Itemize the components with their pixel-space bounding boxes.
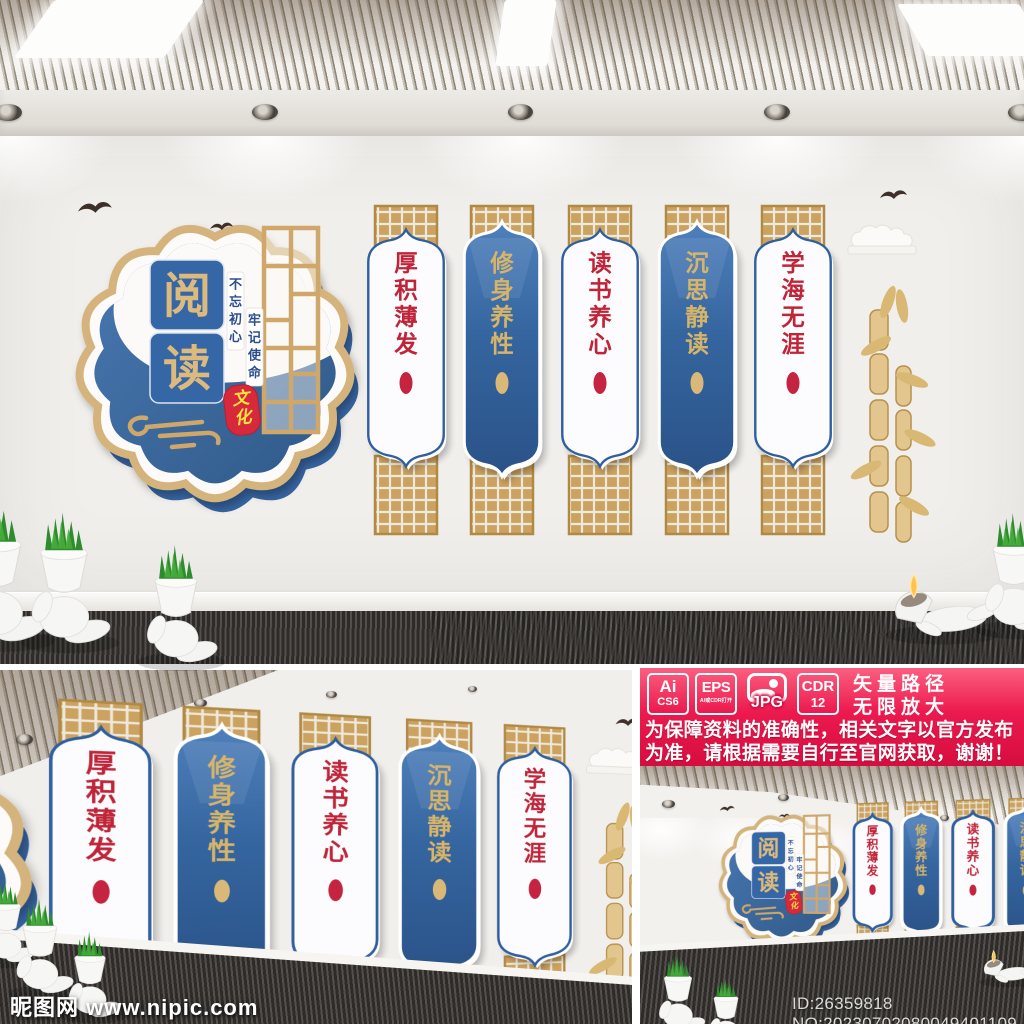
downlight-icon: [1008, 104, 1024, 121]
panel-厚积薄发: 厚积薄发: [368, 206, 446, 534]
disclaimer-line: 为准，请根据需要自行至官网获取，谢谢！: [645, 742, 1019, 765]
svg-text:发: 发: [84, 836, 117, 865]
svg-text:读: 读: [1020, 862, 1024, 877]
svg-text:书: 书: [588, 277, 612, 303]
svg-text:养: 养: [587, 303, 612, 330]
svg-text:忘: 忘: [229, 294, 242, 309]
svg-text:身: 身: [915, 836, 928, 851]
badge-label: CDR: [799, 679, 837, 694]
ceiling-light: [14, 0, 205, 58]
svg-text:修: 修: [207, 755, 237, 783]
svg-text:心: 心: [588, 331, 612, 357]
svg-text:养: 养: [914, 850, 928, 865]
svg-text:薄: 薄: [867, 850, 879, 864]
svg-text:读: 读: [163, 343, 211, 396]
svg-text:性: 性: [208, 838, 236, 865]
culture-seal: 文化: [222, 383, 262, 437]
svg-text:身: 身: [208, 781, 236, 809]
bamboo-decoration: [848, 284, 937, 542]
badge-sublabel: AI或CDR打开: [698, 699, 734, 704]
culture-wall: 厚积薄发修身养性读书养心沉思静读学海无涯阅读不忘初心牢记使命文化: [60, 170, 960, 600]
svg-text:养: 养: [965, 849, 980, 864]
svg-text:学: 学: [524, 766, 547, 791]
svg-text:读: 读: [588, 250, 612, 276]
svg-text:无: 无: [781, 304, 805, 330]
svg-text:初: 初: [229, 312, 242, 327]
svg-text:涯: 涯: [781, 331, 805, 357]
svg-text:书: 书: [967, 835, 980, 850]
badge-sublabel: CS6: [649, 697, 687, 708]
svg-text:书: 书: [323, 786, 349, 812]
panel-读书养心: 读书养心: [562, 206, 640, 534]
svg-text:读: 读: [758, 870, 780, 895]
svg-text:思: 思: [1020, 836, 1024, 850]
svg-text:积: 积: [394, 277, 418, 303]
downlight-icon: [764, 104, 790, 120]
svg-text:命: 命: [247, 365, 262, 380]
svg-text:发: 发: [393, 330, 418, 357]
cloud-shelf: [848, 225, 916, 254]
svg-text:修: 修: [489, 250, 514, 276]
svg-text:身: 身: [490, 276, 514, 303]
svg-text:读: 读: [323, 759, 350, 786]
svg-text:海: 海: [524, 791, 547, 816]
tagline-line: 无限放大: [853, 696, 949, 719]
downlight-icon: [0, 104, 22, 121]
svg-text:积: 积: [86, 779, 117, 808]
svg-text:心: 心: [229, 329, 242, 344]
bird-icon: [616, 718, 632, 727]
gold-shelf: [264, 228, 318, 432]
svg-text:读: 读: [967, 822, 980, 837]
disclaimer-text: 为保障资料的准确性，相关文字以官方发布 为准，请根据需要自行至官网获取，谢谢！: [640, 718, 1024, 765]
svg-text:思: 思: [685, 277, 709, 303]
ceiling-soffit: [0, 90, 1024, 136]
main-render: 厚积薄发修身养性读书养心沉思静读学海无涯阅读不忘初心牢记使命文化: [0, 0, 1024, 664]
svg-text:静: 静: [1020, 848, 1024, 863]
svg-text:读: 读: [685, 331, 709, 357]
badge-sublabel: 12: [799, 696, 837, 709]
badge-label: Ai: [649, 678, 687, 695]
format-badge-ai: Ai CS6: [647, 673, 689, 715]
format-badge-cdr: CDR 12: [797, 673, 839, 715]
svg-text:静: 静: [685, 304, 709, 330]
downlight-icon: [662, 800, 675, 808]
panel-沉思静读: 沉思静读: [659, 206, 737, 534]
downlight-icon: [252, 104, 278, 120]
ceiling-light: [495, 0, 556, 66]
culture-seal: 文化: [784, 889, 803, 914]
svg-text:性: 性: [490, 331, 514, 357]
info-banner: Ai CS6 EPS AI或CDR打开 JPG CDR 12 矢量路径 无限放大: [640, 668, 1024, 766]
svg-text:积: 积: [867, 837, 879, 851]
svg-text:沉: 沉: [685, 250, 709, 276]
angled-render-right: 厚积薄发修身养性读书养心沉思静读学海无涯阅读不忘初心牢记使命文化: [640, 766, 1024, 1024]
format-badge-eps: EPS AI或CDR打开: [695, 673, 737, 715]
bird-icon: [720, 806, 735, 811]
cloud-shelf: [587, 747, 632, 775]
panel-学海无涯: 学海无涯: [755, 206, 833, 534]
svg-text:无: 无: [524, 817, 547, 841]
svg-text:阅: 阅: [758, 836, 780, 862]
sun-dot-icon: [769, 679, 778, 688]
format-badge-jpg: JPG: [743, 673, 791, 712]
svg-text:心: 心: [967, 864, 980, 878]
culture-wall-graphic: 厚积薄发修身养性读书养心沉思静读学海无涯阅读不忘初心牢记使命文化: [60, 170, 960, 600]
svg-text:静: 静: [427, 815, 452, 840]
svg-text:读: 读: [427, 841, 452, 866]
watermark: 昵图网 www.nipic.com: [10, 990, 258, 1022]
svg-text:修: 修: [914, 823, 928, 838]
svg-text:性: 性: [915, 863, 928, 878]
tagline-line: 矢量路径: [853, 673, 949, 696]
svg-text:不: 不: [788, 839, 794, 847]
svg-text:厚: 厚: [86, 750, 117, 779]
svg-text:厚: 厚: [394, 250, 418, 276]
carpet-floor: [0, 611, 1024, 664]
bird-icon: [880, 190, 907, 199]
downlight-icon: [508, 104, 533, 120]
badge-label: JPG: [743, 694, 791, 712]
svg-text:海: 海: [781, 276, 805, 303]
svg-text:厚: 厚: [867, 825, 879, 838]
svg-text:阅: 阅: [163, 270, 211, 323]
svg-text:薄: 薄: [394, 304, 418, 330]
baseboard: [0, 592, 1024, 612]
format-badges: Ai CS6 EPS AI或CDR打开 JPG CDR 12 矢量路径 无限放大: [640, 668, 1024, 718]
badge-label: EPS: [697, 680, 735, 695]
disclaimer-line: 为保障资料的准确性，相关文字以官方发布: [645, 719, 1019, 742]
svg-text:发: 发: [866, 864, 879, 878]
gold-shelf: [804, 815, 830, 913]
svg-text:思: 思: [427, 789, 451, 814]
svg-text:学: 学: [781, 249, 805, 276]
svg-text:养: 养: [321, 812, 349, 839]
svg-text:记: 记: [248, 330, 261, 345]
svg-text:不: 不: [229, 277, 242, 292]
vector-tagline: 矢量路径 无限放大: [853, 673, 949, 719]
angled-render-left: 厚积薄发修身养性读书养心沉思静读学海无涯阅读不忘初心牢记使命文化: [0, 670, 632, 1024]
svg-text:涯: 涯: [524, 842, 547, 866]
image-id: ID:26359818 NO:20230702080049401109: [792, 994, 1024, 1024]
svg-text:沉: 沉: [427, 763, 452, 789]
ceiling-light: [897, 4, 1024, 56]
panel-修身养性: 修身养性: [464, 206, 542, 534]
svg-text:沉: 沉: [1020, 820, 1024, 835]
svg-text:薄: 薄: [86, 808, 117, 836]
svg-text:养: 养: [489, 303, 514, 330]
svg-text:养: 养: [207, 809, 237, 837]
svg-text:使: 使: [247, 348, 262, 363]
design-preview: 厚积薄发修身养性读书养心沉思静读学海无涯阅读不忘初心牢记使命文化 厚积薄发修身养…: [0, 0, 1024, 1024]
svg-text:牢: 牢: [248, 313, 261, 328]
svg-text:心: 心: [323, 840, 350, 866]
ceiling-slats: [0, 0, 1024, 90]
bird-icon: [78, 202, 112, 213]
